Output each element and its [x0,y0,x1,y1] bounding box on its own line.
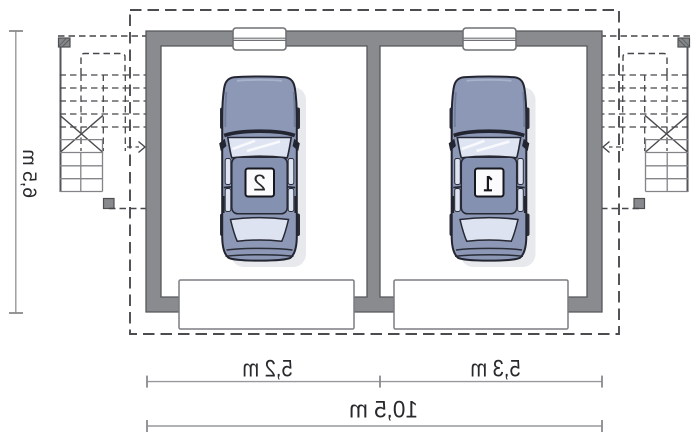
svg-text:5,3 m: 5,3 m [470,355,520,382]
svg-text:5,2 m: 5,2 m [242,355,292,382]
svg-text:6,5 m: 6,5 m [18,149,40,198]
svg-text:2: 2 [253,170,266,196]
svg-text:10,5 m: 10,5 m [349,396,418,423]
